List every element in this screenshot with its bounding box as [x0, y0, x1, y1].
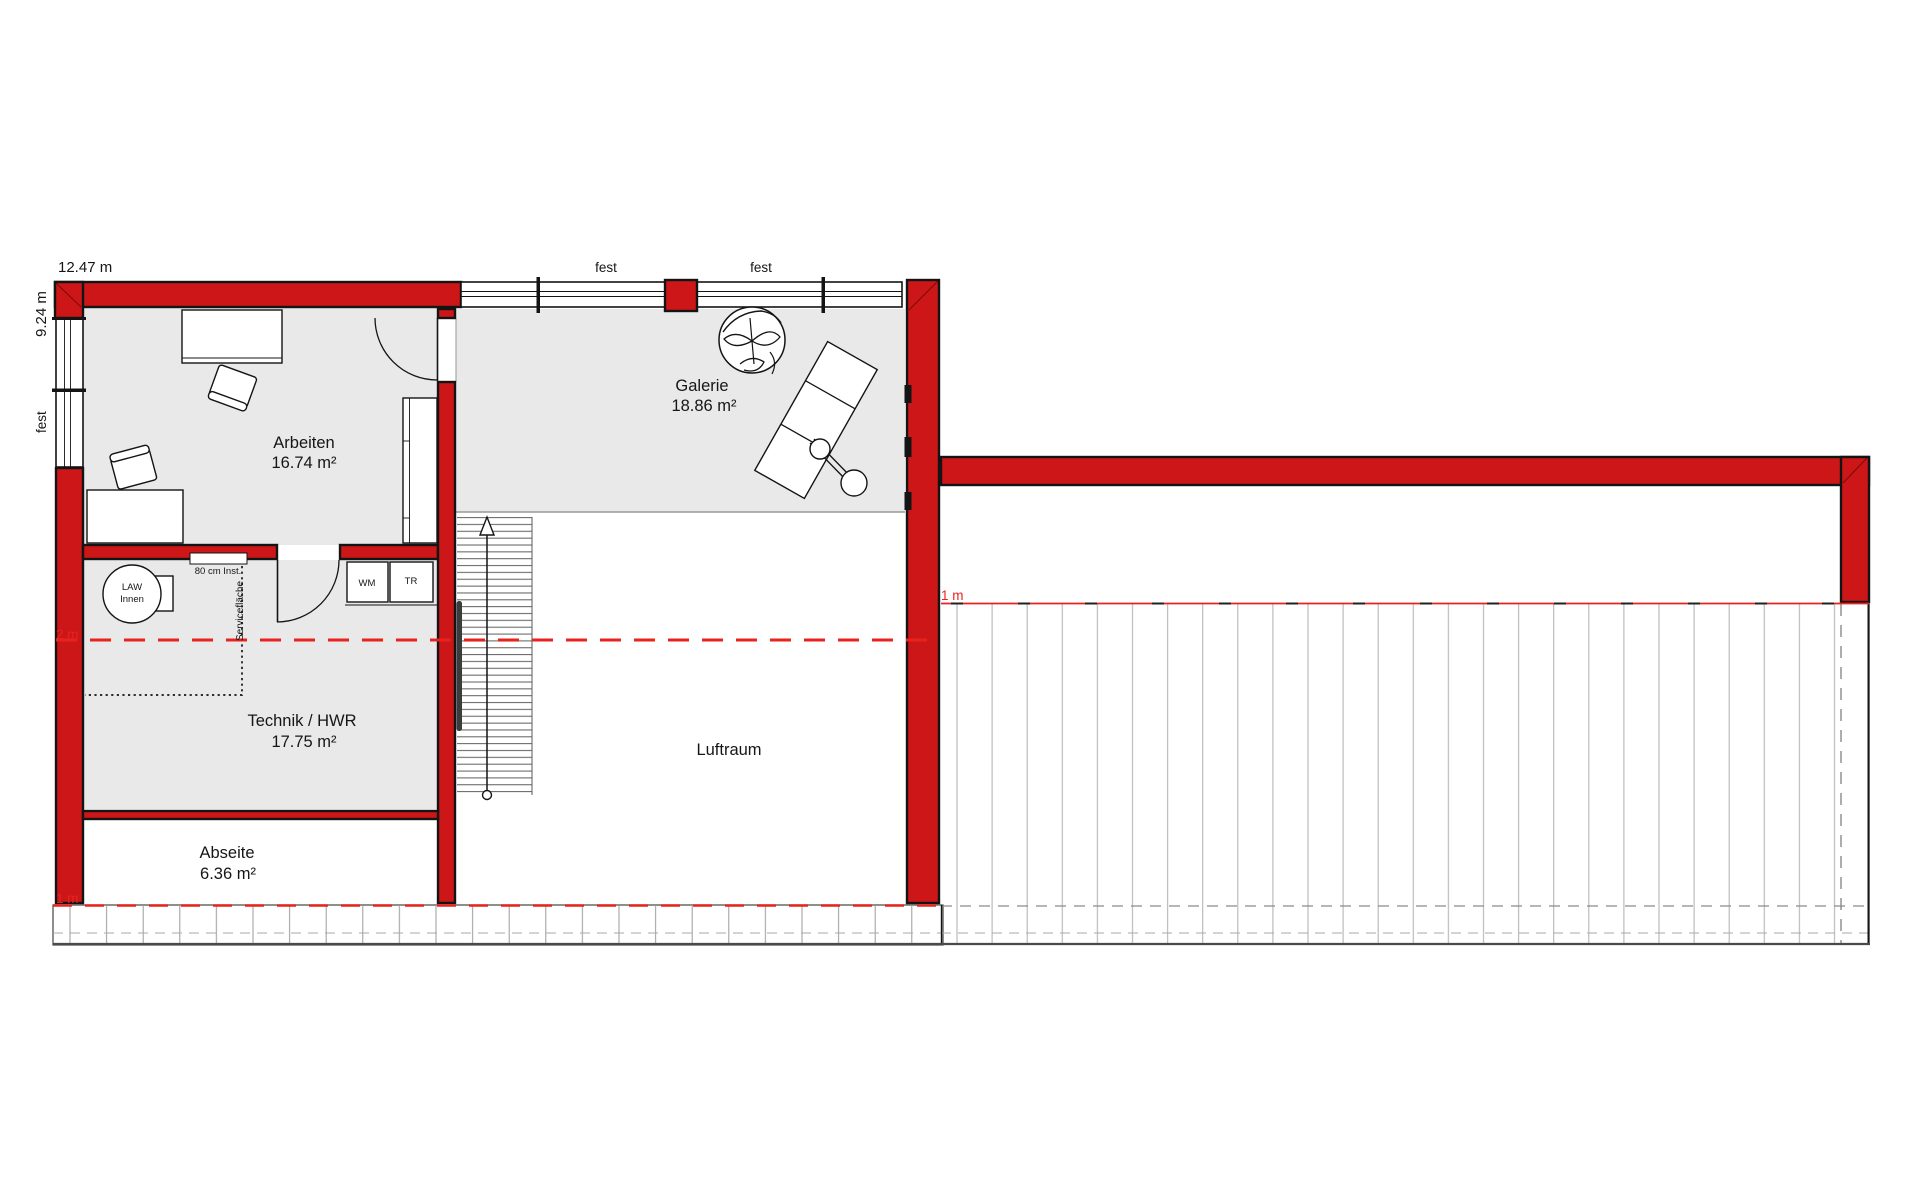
wall-abseite — [83, 811, 438, 819]
desk-2 — [87, 490, 183, 543]
door-opening — [438, 318, 455, 382]
room-label-luftraum: Luftraum — [696, 741, 761, 759]
room-label-abseite: Abseite — [199, 844, 254, 862]
window-left — [56, 319, 83, 467]
paving-strip — [53, 905, 943, 945]
wall-right-structure-top — [941, 457, 1869, 485]
heat-pump-label-1: LAW — [122, 582, 142, 593]
heat-pump-label-2: Innen — [120, 594, 144, 605]
dryer-label: TR — [405, 576, 418, 587]
roof-hatching — [941, 604, 1870, 943]
shelf — [403, 398, 437, 543]
room-label-technik: Technik / HWR — [247, 712, 356, 730]
room-label-arbeiten: Arbeiten — [273, 434, 334, 452]
height-line-2m-label: 2 m — [56, 627, 79, 642]
fixed-window-label-top-1: fest — [595, 260, 617, 275]
wall-right — [907, 280, 939, 903]
floor-plan: 12.47 m 9.24 m fest fest fest Arbeiten 1… — [0, 0, 1920, 1200]
stairs — [457, 517, 533, 800]
window-pillar — [665, 280, 697, 311]
stairs-start-marker-icon — [483, 791, 492, 800]
service-area-label: Servicefläche — [235, 581, 246, 641]
wall-interior-b — [340, 545, 438, 559]
stair-handrail — [457, 601, 463, 731]
room-abseite — [83, 820, 438, 903]
floor-plan-canvas: 12.47 m 9.24 m fest fest fest Arbeiten 1… — [0, 0, 1920, 1200]
wall-stub — [438, 309, 455, 318]
height-line-1m-label-left: 1 m — [56, 891, 79, 906]
wall-left-upper — [55, 282, 83, 318]
dimension-height-label: 9.24 m — [33, 291, 50, 337]
window-mullion-tick — [537, 277, 541, 313]
dimension-width-label: 12.47 m — [58, 259, 112, 276]
window-sill-tick — [52, 317, 86, 320]
wall-left-lower — [56, 468, 83, 903]
stair-treads — [457, 517, 532, 795]
desk — [182, 310, 282, 363]
area-label-arbeiten: 16.74 m² — [271, 454, 337, 472]
wall-top — [55, 282, 461, 307]
plant-icon — [719, 307, 785, 374]
installation-niche — [190, 553, 247, 564]
installation-niche-label: 80 cm Inst. — [195, 566, 241, 577]
wall-right-structure-right — [1841, 457, 1869, 602]
wall-interior-vertical — [438, 382, 455, 903]
window-sill-tick — [52, 389, 86, 393]
area-label-galerie: 18.86 m² — [671, 397, 737, 415]
height-line-1m-label-right: 1 m — [941, 588, 964, 603]
fixed-window-label-left: fest — [34, 411, 49, 433]
area-label-abseite: 6.36 m² — [200, 865, 256, 883]
washing-machine-label: WM — [359, 578, 376, 589]
fixed-window-label-top-2: fest — [750, 260, 772, 275]
room-label-galerie: Galerie — [675, 377, 728, 395]
window-mullion-tick — [822, 277, 826, 313]
area-label-technik: 17.75 m² — [271, 733, 337, 751]
wall-interior-a — [83, 545, 277, 559]
